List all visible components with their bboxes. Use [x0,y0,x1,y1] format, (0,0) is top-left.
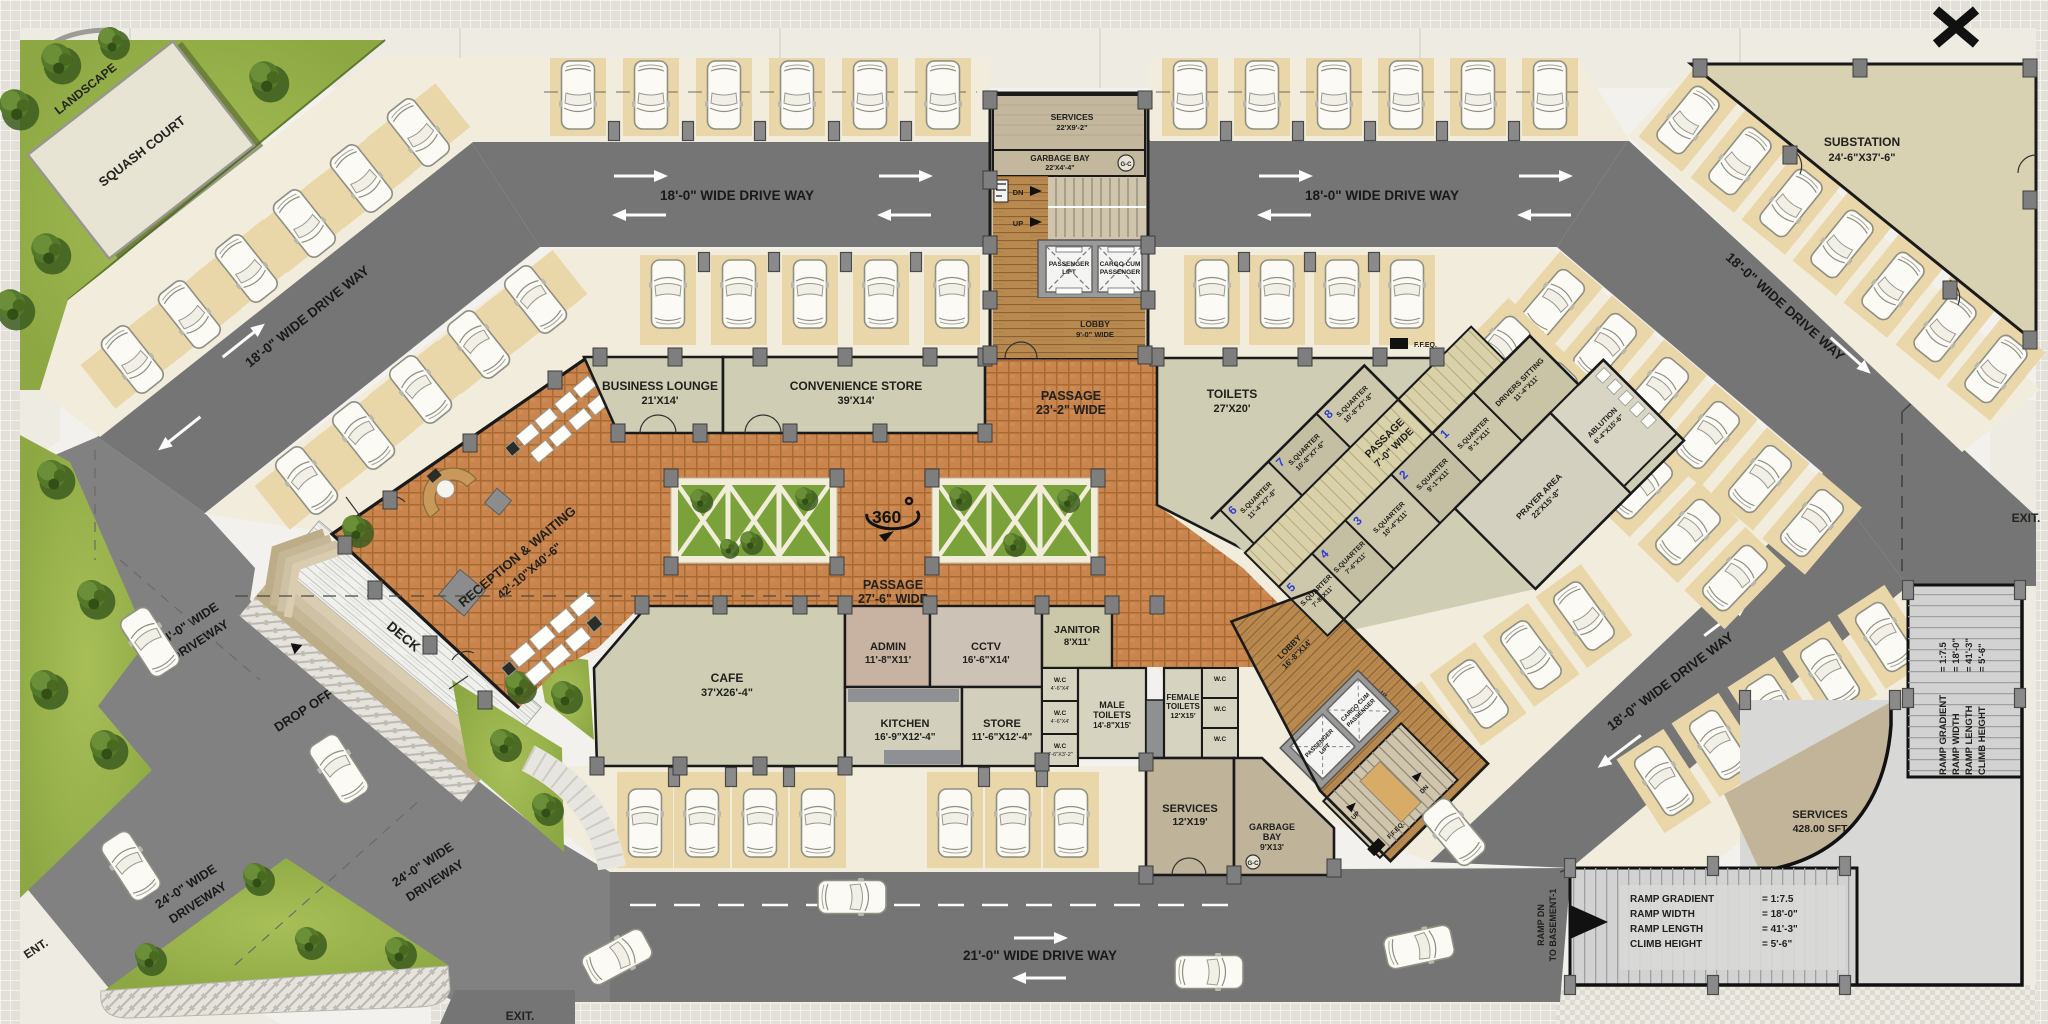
svg-text:23'-2" WIDE: 23'-2" WIDE [1036,403,1106,417]
svg-text:428.00 SFT: 428.00 SFT [1793,823,1848,835]
svg-text:37'X26'-4": 37'X26'-4" [701,687,753,699]
svg-text:14'-8"X15': 14'-8"X15' [1093,721,1131,730]
svg-text:21'X14': 21'X14' [641,395,678,407]
svg-text:27'-6" WIDE: 27'-6" WIDE [858,592,928,606]
svg-text:CARGO CUM: CARGO CUM [1100,261,1141,268]
svg-text:TOILETS: TOILETS [1207,387,1257,401]
svg-text:21'-0" WIDE DRIVE WAY: 21'-0" WIDE DRIVE WAY [963,948,1117,963]
svg-text:LOBBY: LOBBY [1080,319,1110,329]
svg-text:TOILETS: TOILETS [1093,710,1131,720]
svg-text:W.C: W.C [1054,743,1067,750]
svg-text:4'-6"X4': 4'-6"X4' [1051,719,1070,725]
svg-text:RAMP DN: RAMP DN [1536,904,1546,946]
svg-text:JANITOR: JANITOR [1054,624,1100,636]
svg-text:RAMP LENGTH: RAMP LENGTH [1630,924,1703,935]
svg-text:= 1:7.5: = 1:7.5 [1762,894,1794,905]
svg-text:BAY: BAY [1263,832,1281,842]
svg-text:= 5'-6": = 5'-6" [1762,939,1792,950]
svg-text:FEMALE: FEMALE [1167,693,1201,702]
svg-text:BUSINESS LOUNGE: BUSINESS LOUNGE [602,379,718,393]
svg-text:RAMP WIDTH: RAMP WIDTH [1951,713,1962,775]
svg-text:11'-8"X11': 11'-8"X11' [865,655,911,666]
svg-text:27'X20': 27'X20' [1213,403,1250,415]
svg-text:RAMP LENGTH: RAMP LENGTH [1964,705,1975,775]
svg-text:STORE: STORE [983,718,1021,730]
svg-text:RAMP GRADIENT: RAMP GRADIENT [1630,894,1714,905]
svg-text:360: 360 [872,507,901,527]
svg-text:G-C: G-C [1248,861,1260,867]
svg-text:GARBAGE BAY: GARBAGE BAY [1030,154,1090,163]
svg-text:16'-6"X14': 16'-6"X14' [962,655,1009,666]
svg-text:12'X19': 12'X19' [1172,816,1207,828]
svg-text:MALE: MALE [1099,700,1125,710]
svg-text:24'-6"X37'-6": 24'-6"X37'-6" [1828,152,1895,164]
svg-text:22'X9'-2": 22'X9'-2" [1056,123,1088,132]
svg-text:EXIT.: EXIT. [506,1009,535,1023]
svg-text:RAMP WIDTH: RAMP WIDTH [1630,909,1695,920]
svg-text:= 41'-3": = 41'-3" [1762,924,1798,935]
svg-text:= 18'-0": = 18'-0" [1762,909,1798,920]
svg-text:PASSAGE: PASSAGE [863,578,923,592]
svg-text:EXIT.: EXIT. [2012,511,2041,525]
svg-text:11'-6"X12'-4": 11'-6"X12'-4" [972,732,1033,743]
svg-text:9'X13': 9'X13' [1260,842,1284,852]
svg-text:22'X4'-4": 22'X4'-4" [1045,165,1074,172]
svg-text:SERVICES: SERVICES [1792,809,1847,821]
svg-text:4'-6"X4': 4'-6"X4' [1051,686,1070,692]
svg-text:GARBAGE: GARBAGE [1249,822,1295,832]
svg-text:12'X15': 12'X15' [1170,711,1195,720]
svg-text:F.F.EQ.: F.F.EQ. [1414,342,1437,349]
svg-text:CAFE: CAFE [711,671,744,685]
svg-text:18'-0" WIDE DRIVE WAY: 18'-0" WIDE DRIVE WAY [1305,188,1459,203]
svg-text:= 5'-6": = 5'-6" [1977,643,1988,672]
svg-text:KITCHEN: KITCHEN [881,718,930,730]
svg-text:PASSAGE: PASSAGE [1041,389,1101,403]
svg-text:DN: DN [1013,188,1024,197]
svg-text:= 1:7.5: = 1:7.5 [1938,641,1949,672]
svg-text:W.C: W.C [1214,676,1227,683]
svg-text:RAMP GRADIENT: RAMP GRADIENT [1938,695,1949,775]
svg-text:PASSENGER: PASSENGER [1100,269,1141,276]
svg-text:SUBSTATION: SUBSTATION [1824,135,1900,149]
svg-text:CLIMB HEIGHT: CLIMB HEIGHT [1977,706,1988,775]
svg-text:16'-9"X12'-4": 16'-9"X12'-4" [875,732,936,743]
svg-text:PASSENGER: PASSENGER [1049,261,1090,268]
svg-text:39'X14': 39'X14' [837,395,874,407]
svg-text:SERVICES: SERVICES [1051,112,1094,122]
svg-text:G-C: G-C [1121,162,1133,168]
svg-text:CLIMB HEIGHT: CLIMB HEIGHT [1630,939,1702,950]
svg-text:W.C: W.C [1214,706,1227,713]
svg-text:4'-6"X3'-2": 4'-6"X3'-2" [1047,752,1073,758]
svg-text:LIFT: LIFT [1062,269,1076,276]
svg-text:18'-0" WIDE DRIVE WAY: 18'-0" WIDE DRIVE WAY [660,188,814,203]
svg-text:W.C: W.C [1054,710,1067,717]
svg-text:= 41'-3": = 41'-3" [1964,638,1975,672]
svg-text:= 18'-0": = 18'-0" [1951,638,1962,672]
svg-text:9'-0" WIDE: 9'-0" WIDE [1076,330,1114,339]
svg-text:SERVICES: SERVICES [1162,803,1217,815]
svg-text:UP: UP [1013,219,1023,228]
svg-text:8'X11': 8'X11' [1064,637,1090,648]
svg-text:TOILETS: TOILETS [1166,702,1200,711]
svg-text:ADMIN: ADMIN [870,641,906,653]
svg-text:W.C: W.C [1214,736,1227,743]
svg-text:W.C: W.C [1054,677,1067,684]
svg-text:CONVENIENCE STORE: CONVENIENCE STORE [790,379,922,393]
svg-text:CCTV: CCTV [971,641,1002,653]
svg-text:TO BASEMENT-1: TO BASEMENT-1 [1548,889,1558,962]
